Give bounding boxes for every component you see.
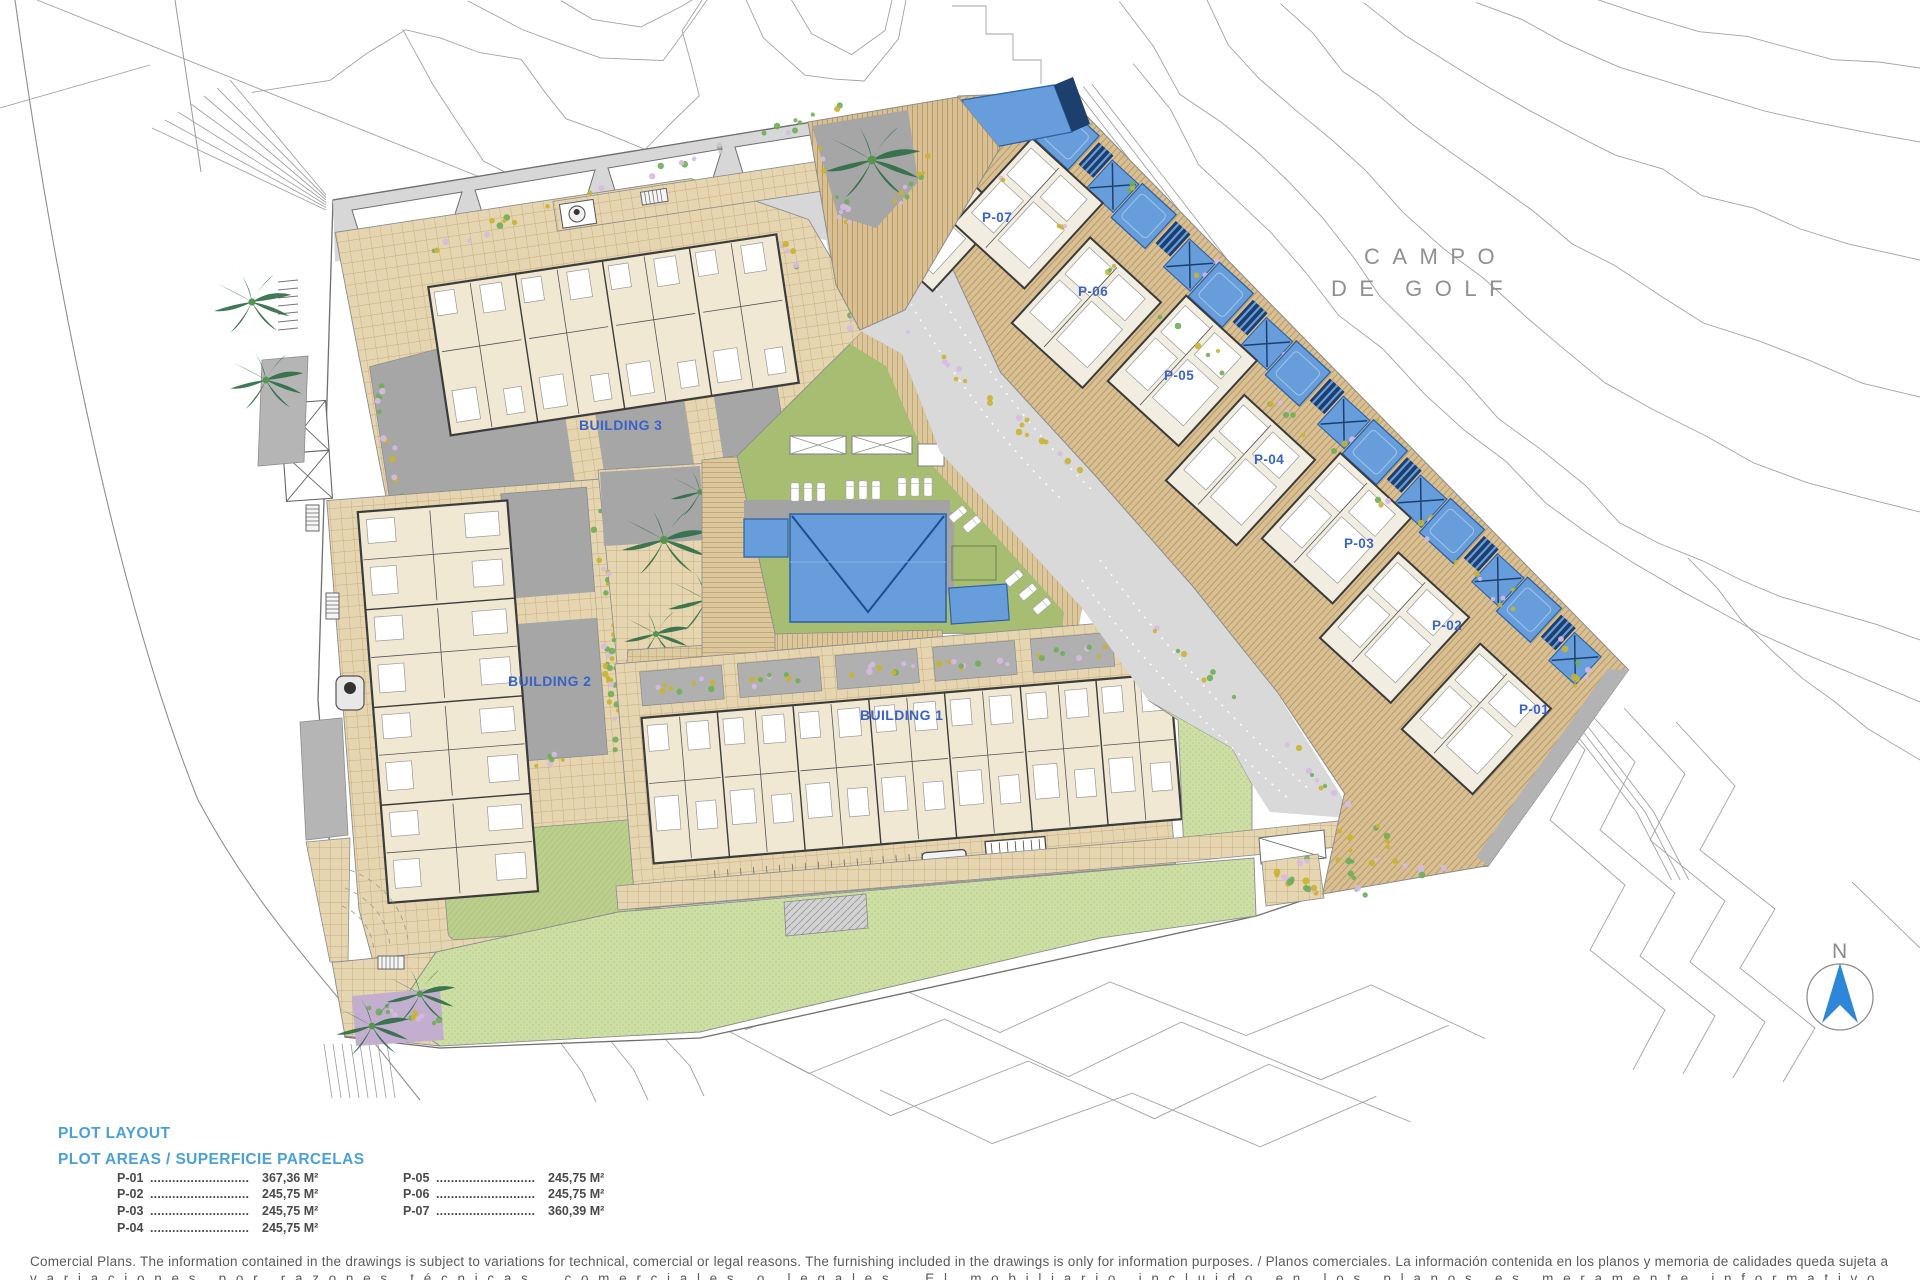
svg-text:P-03: P-03 [117,1204,143,1218]
svg-text:BUILDING 1: BUILDING 1 [860,707,943,723]
svg-text:P-02: P-02 [1432,618,1462,633]
svg-text:PLOT LAYOUT: PLOT LAYOUT [58,1125,170,1142]
svg-text:P-03: P-03 [1344,536,1374,551]
svg-text:PLOT AREAS / SUPERFICIE PARCEL: PLOT AREAS / SUPERFICIE PARCELAS [58,1151,364,1168]
svg-text:245,75 M²: 245,75 M² [548,1187,604,1201]
svg-text:P-06: P-06 [1078,284,1108,299]
svg-text:245,75 M²: 245,75 M² [262,1187,318,1201]
svg-text:N: N [1832,940,1847,963]
svg-text:DE GOLF: DE GOLF [1331,276,1515,301]
svg-text:245,75 M²: 245,75 M² [262,1221,318,1235]
svg-text:P-01: P-01 [117,1171,143,1185]
svg-text:...........................: ........................... [150,1187,249,1201]
svg-text:P-04: P-04 [1254,452,1284,467]
svg-text:...........................: ........................... [150,1171,249,1185]
svg-text:360,39 M²: 360,39 M² [548,1204,604,1218]
svg-text:P-07: P-07 [403,1204,429,1218]
svg-text:P-06: P-06 [403,1187,429,1201]
svg-text:...........................: ........................... [150,1204,249,1218]
svg-text:BUILDING 2: BUILDING 2 [508,673,591,689]
svg-text:P-01: P-01 [1519,702,1549,717]
svg-text:P-05: P-05 [403,1171,429,1185]
svg-text:P-07: P-07 [982,210,1012,225]
svg-text:...........................: ........................... [436,1204,535,1218]
svg-text:CAMPO: CAMPO [1364,244,1507,269]
svg-text:BUILDING 3: BUILDING 3 [579,417,662,433]
svg-text:P-05: P-05 [1164,368,1194,383]
svg-text:...........................: ........................... [436,1171,535,1185]
svg-text:...........................: ........................... [150,1221,249,1235]
svg-text:245,75 M²: 245,75 M² [548,1171,604,1185]
svg-text:Comercial Plans. The informati: Comercial Plans. The information contain… [30,1254,1888,1269]
svg-text:P-04: P-04 [117,1221,143,1235]
svg-text:P-02: P-02 [117,1187,143,1201]
svg-text:...........................: ........................... [436,1187,535,1201]
svg-text:367,36 M²: 367,36 M² [262,1171,318,1185]
svg-text:245,75 M²: 245,75 M² [262,1204,318,1218]
